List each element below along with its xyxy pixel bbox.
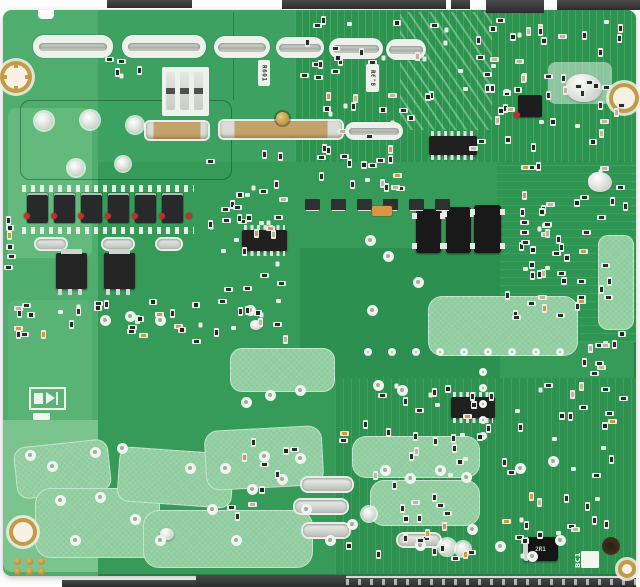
smd-body <box>471 147 475 151</box>
smd-component <box>598 48 603 57</box>
smd-body <box>492 58 496 62</box>
smd-body <box>243 249 247 253</box>
smd-component <box>521 538 529 544</box>
smd-component <box>139 333 148 338</box>
smd-body <box>509 471 513 475</box>
smd-component <box>326 92 331 101</box>
ic-pins-top <box>431 131 475 136</box>
castellation <box>25 75 32 80</box>
smd-body <box>594 84 598 89</box>
smd-component <box>340 154 349 159</box>
smd-body <box>434 439 438 443</box>
solder-pad-row <box>22 185 194 192</box>
smd-component <box>546 91 551 100</box>
smd-component <box>515 59 524 64</box>
smd-body <box>119 60 123 64</box>
smd-body <box>8 226 12 231</box>
smd-body <box>597 362 601 366</box>
smd-component <box>208 220 213 229</box>
smd-component <box>4 265 13 270</box>
smd-body <box>576 85 580 89</box>
smd-component <box>490 84 495 93</box>
smd-body <box>322 18 326 22</box>
smd-component <box>471 401 477 409</box>
red-glue-dot <box>186 213 192 219</box>
smd-body <box>389 157 393 161</box>
red-glue-dot <box>159 213 165 219</box>
smd-component <box>251 438 256 447</box>
smd-body <box>546 384 550 388</box>
smd-body <box>522 76 526 80</box>
smd-component <box>518 423 523 432</box>
through-hole-pad <box>55 495 66 506</box>
mosfet-tab <box>109 249 131 254</box>
smd-body <box>138 68 142 72</box>
smd-body <box>433 549 437 553</box>
smd-component <box>340 431 349 436</box>
smd-component <box>518 33 522 38</box>
optocoupler <box>416 209 441 253</box>
smd-component <box>277 281 286 286</box>
smd-body <box>560 414 565 418</box>
smd-body <box>229 506 233 510</box>
smd-body <box>615 110 619 114</box>
smd-body <box>385 185 389 189</box>
smd-component <box>505 136 511 144</box>
smd-component <box>542 304 547 313</box>
smd-body <box>511 35 516 39</box>
smd-component <box>170 309 175 318</box>
smd-body <box>557 237 561 241</box>
smd-body <box>279 154 283 158</box>
smd-component <box>266 226 275 231</box>
through-hole-pad <box>47 461 58 472</box>
smd-component <box>415 52 420 61</box>
smd-component <box>274 215 283 220</box>
smd-component <box>273 322 282 327</box>
smd-body <box>562 76 566 80</box>
smd-component <box>275 470 280 479</box>
bus-bar <box>220 121 342 138</box>
smd-component <box>254 310 262 316</box>
smd-body <box>607 412 611 416</box>
smd-component <box>527 301 536 306</box>
smd-component <box>580 89 585 98</box>
smd-body <box>404 536 408 540</box>
smd-body <box>506 293 510 297</box>
smd-body <box>6 266 10 270</box>
smd-component <box>218 299 227 304</box>
jumper-block <box>162 67 209 116</box>
smd-body <box>333 70 337 74</box>
smd-component <box>351 102 356 111</box>
smd-component <box>432 547 437 556</box>
smd-body <box>378 159 382 163</box>
smd-component <box>537 498 542 507</box>
smd-body <box>284 337 288 341</box>
via-pad <box>479 384 487 392</box>
via-pad <box>364 348 372 356</box>
smd-body <box>496 118 500 122</box>
smd-body <box>571 392 575 396</box>
smd-component <box>530 271 535 280</box>
smd-component <box>575 124 580 128</box>
smd-body <box>579 280 583 284</box>
smd-component <box>515 409 520 413</box>
smd-body <box>194 303 198 308</box>
smd-component <box>178 327 186 333</box>
smd-body <box>491 86 495 90</box>
smd-component <box>149 299 157 305</box>
smd-body <box>247 216 252 220</box>
through-hole-pad <box>231 535 242 546</box>
smd-body <box>9 255 13 259</box>
smd-component <box>7 254 16 259</box>
smd-body <box>583 33 587 37</box>
smd-component <box>6 244 14 250</box>
smd-component <box>371 77 375 82</box>
smd-component <box>254 229 259 238</box>
smd-component <box>582 230 591 235</box>
smd-body <box>370 164 374 168</box>
smd-component <box>607 277 612 286</box>
smd-component <box>425 93 431 101</box>
smd-body <box>608 279 612 283</box>
smd-component <box>564 254 570 262</box>
smd-component <box>403 515 409 523</box>
smd-component <box>317 155 326 160</box>
smd-transistor <box>162 193 183 223</box>
smd-body <box>194 340 198 344</box>
smd-body <box>352 104 356 108</box>
smd-component <box>521 74 526 83</box>
smd-component <box>608 419 617 424</box>
smd-component <box>400 504 405 513</box>
smd-body <box>605 522 609 526</box>
smd-body <box>532 145 536 149</box>
smd-component <box>539 120 544 124</box>
smd-component <box>41 330 46 339</box>
smd-component <box>568 412 573 421</box>
smd-component <box>403 534 408 543</box>
smd-body <box>491 27 495 32</box>
smd-component <box>539 388 543 393</box>
smd-component <box>537 270 542 279</box>
smd-component <box>368 60 377 65</box>
gold-test-pad <box>26 568 33 575</box>
smd-body <box>539 29 543 33</box>
smd-component <box>413 432 418 441</box>
solder-stud <box>276 112 289 125</box>
smd-body <box>226 288 230 292</box>
smd-component <box>388 145 393 154</box>
smd-component <box>552 251 561 256</box>
smd-component <box>574 199 580 207</box>
smd-body <box>587 81 591 85</box>
smd-body <box>281 198 285 202</box>
smd-component <box>94 301 103 306</box>
smd-component <box>278 152 283 161</box>
smd-body <box>393 186 397 190</box>
smd-component <box>563 86 568 95</box>
smd-chip <box>518 95 542 117</box>
smd-component <box>76 307 81 316</box>
smd-body <box>621 397 625 401</box>
smd-component <box>490 57 499 62</box>
through-hole-pad <box>100 315 111 326</box>
smd-component <box>407 115 415 121</box>
smd-component <box>510 33 516 41</box>
smd-body <box>581 250 585 254</box>
smd-component <box>561 277 567 285</box>
smd-component <box>604 520 609 529</box>
through-hole-pad <box>155 535 166 546</box>
smd-component <box>544 74 553 79</box>
smd-component <box>524 521 529 530</box>
smd-component <box>451 434 456 443</box>
smd-component <box>214 328 219 337</box>
smd-body <box>381 181 385 185</box>
tinned-through-hole-pad <box>68 160 84 176</box>
via-pad <box>479 416 487 424</box>
smd-component <box>440 544 445 553</box>
smd-component <box>271 230 276 239</box>
smd-body <box>453 446 457 450</box>
smd-body <box>619 26 623 30</box>
smd-component <box>592 516 597 525</box>
smd-body <box>446 387 451 391</box>
smd-component <box>6 216 11 225</box>
smd-body <box>16 307 20 311</box>
smd-body <box>364 422 368 426</box>
smd-component <box>507 470 516 475</box>
smd-component <box>136 316 144 322</box>
smd-body <box>551 120 556 124</box>
smd-component <box>463 87 468 91</box>
smd-component <box>248 502 257 507</box>
smd-component <box>476 36 481 45</box>
smd-component <box>252 186 256 191</box>
through-hole-pad <box>295 385 306 396</box>
mounting-hole <box>4 65 28 89</box>
smd-component <box>359 48 364 57</box>
smd-body <box>105 302 109 306</box>
smd-component <box>238 307 243 316</box>
through-hole-pad <box>265 390 276 401</box>
smd-body <box>523 539 527 544</box>
smd-component <box>425 529 430 538</box>
optocoupler-pin <box>500 243 505 249</box>
smd-component <box>391 185 400 190</box>
smd-body <box>531 273 535 277</box>
components-layer: R601R608BC12R1 <box>0 0 640 587</box>
smd-component <box>538 27 543 36</box>
smd-component <box>588 344 593 353</box>
smd-body <box>262 463 266 467</box>
smd-component <box>579 249 588 254</box>
smd-component <box>559 412 565 420</box>
castellation <box>14 62 19 69</box>
smd-body <box>603 388 607 392</box>
through-hole-pad <box>117 443 128 454</box>
through-hole-pad <box>90 447 101 458</box>
smd-body <box>319 156 323 160</box>
smd-component <box>556 531 561 535</box>
through-hole-pad <box>367 305 378 316</box>
smd-body <box>465 415 469 419</box>
smd-body <box>529 302 533 306</box>
solder-slot <box>276 37 324 58</box>
smd-body <box>432 24 436 28</box>
smd-body <box>261 190 265 194</box>
smd-body <box>138 317 142 322</box>
diode-marking: 2R1 <box>535 546 546 553</box>
smd-component <box>612 340 617 349</box>
smd-component <box>267 221 271 226</box>
smd-component <box>520 518 524 523</box>
smd-body <box>238 216 242 220</box>
smd-component <box>376 158 385 163</box>
smd-component <box>58 310 63 314</box>
smd-component <box>557 271 566 276</box>
smd-component <box>313 23 322 28</box>
smd-component <box>601 446 606 450</box>
through-hole-pad <box>301 504 312 515</box>
smd-component <box>260 273 269 278</box>
tinned-pad <box>303 524 349 537</box>
smd-component <box>580 195 589 200</box>
smd-component <box>496 18 505 23</box>
smd-body <box>315 24 319 28</box>
smd-component <box>605 411 614 416</box>
smd-body <box>342 155 346 159</box>
smd-body <box>29 313 33 318</box>
smd-body <box>602 167 606 171</box>
smd-component <box>243 286 252 291</box>
smd-component <box>233 205 242 210</box>
smd-component <box>350 180 355 189</box>
smd-component <box>322 144 327 153</box>
smd-component <box>283 447 289 455</box>
smd-component <box>452 444 457 453</box>
solder-slot <box>33 35 113 58</box>
smd-body <box>554 252 558 256</box>
smd-component <box>224 287 233 292</box>
smd-component <box>618 24 623 33</box>
smd-component <box>514 87 522 93</box>
smd-body <box>471 394 475 398</box>
sot23-transistor <box>357 199 372 210</box>
smd-component <box>339 438 348 443</box>
smd-component <box>609 455 614 464</box>
smd-body <box>319 62 323 66</box>
smd-component <box>582 31 587 40</box>
smd-body <box>18 311 22 315</box>
optocoupler-pin <box>442 211 447 217</box>
smd-body <box>559 272 563 276</box>
smd-component <box>489 392 494 401</box>
mosfet-tab <box>61 249 83 254</box>
through-hole-pad <box>95 492 106 503</box>
solder-pad-row <box>22 227 194 234</box>
smd-body <box>7 218 11 222</box>
jumper-link <box>194 72 203 110</box>
smd-body <box>443 524 447 528</box>
smd-component <box>536 162 541 171</box>
castellation <box>14 86 19 93</box>
smd-body <box>565 256 570 260</box>
smd-component <box>105 57 114 62</box>
smd-body <box>302 74 306 78</box>
smd-body <box>208 160 212 164</box>
smd-body <box>441 546 445 550</box>
tinned-through-hole-pad <box>127 117 143 133</box>
smd-body <box>395 174 399 178</box>
smd-body <box>620 332 624 337</box>
smd-component <box>245 193 250 197</box>
smd-component <box>456 459 464 465</box>
smd-component <box>599 129 604 138</box>
smd-component <box>544 383 553 388</box>
smd-body <box>360 50 364 54</box>
smd-component <box>604 295 613 300</box>
diode-symbol-bar <box>56 392 58 405</box>
smd-component <box>403 397 408 406</box>
smd-body <box>485 73 489 77</box>
smd-body <box>433 390 437 394</box>
smd-body <box>582 196 586 200</box>
smd-component <box>558 34 567 39</box>
smd-body <box>522 221 526 225</box>
smd-body <box>438 504 442 508</box>
smd-body <box>610 420 614 424</box>
smd-component <box>22 303 31 308</box>
smd-component <box>221 207 230 212</box>
smd-body <box>530 263 535 267</box>
smd-body <box>418 516 422 520</box>
through-hole-pad <box>461 472 472 483</box>
through-hole-pad <box>207 504 218 515</box>
gold-test-pad <box>14 558 21 565</box>
smd-body <box>374 473 378 477</box>
smd-body <box>575 201 580 205</box>
through-hole-pad <box>241 397 252 408</box>
smd-component <box>617 103 626 108</box>
through-hole-pad <box>220 463 231 474</box>
smd-component <box>347 22 352 26</box>
smd-body <box>542 39 547 43</box>
smd-body <box>603 344 607 348</box>
smd-body <box>624 204 628 208</box>
smd-component <box>414 447 419 456</box>
through-hole-pad <box>295 453 306 464</box>
smd-component <box>415 408 424 413</box>
smd-body <box>545 223 549 227</box>
smd-component <box>545 229 550 238</box>
smd-body <box>517 60 521 64</box>
smd-component <box>236 192 244 198</box>
smd-component <box>537 531 543 539</box>
smd-body <box>525 523 529 527</box>
smd-body <box>77 309 81 313</box>
optocoupler-pin <box>442 243 447 249</box>
gold-test-pad <box>26 558 33 565</box>
smd-component <box>259 221 264 225</box>
mounting-hole <box>622 564 632 574</box>
smd-component <box>117 59 126 64</box>
smd-component <box>416 538 425 543</box>
smd-body <box>275 182 279 186</box>
